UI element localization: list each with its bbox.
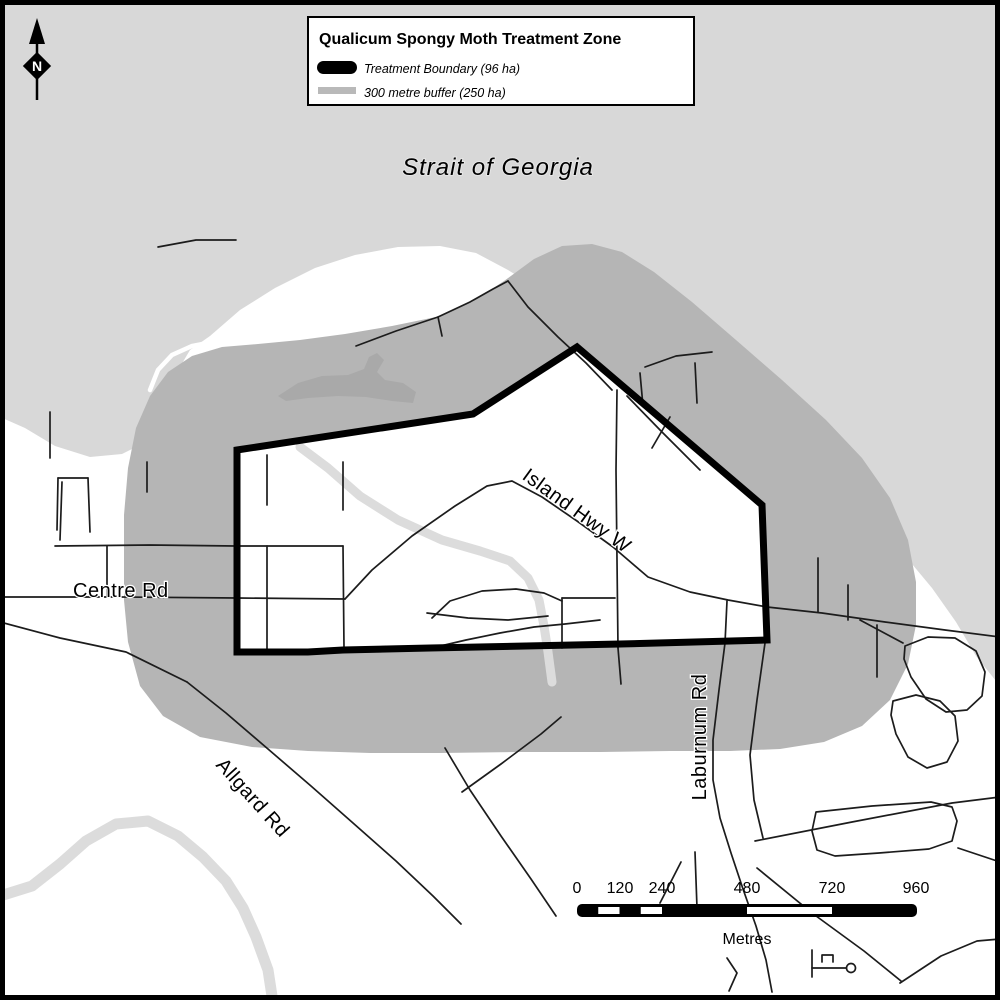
road-7 xyxy=(57,478,58,530)
road-8 xyxy=(88,478,90,532)
map-geometry-layer xyxy=(0,0,1000,996)
treatment-boundary-swatch xyxy=(317,61,357,74)
culdesac-loop xyxy=(847,964,856,973)
road-13 xyxy=(343,546,344,648)
road-53 xyxy=(900,939,1000,983)
scale-bar-white-segment-0 xyxy=(598,907,619,914)
scale-bar-white-segment-1 xyxy=(641,907,662,914)
road-49 xyxy=(891,695,958,768)
scale-tick-240: 240 xyxy=(649,880,676,897)
scale-bar-white-segment-2 xyxy=(747,907,832,914)
scale-bar-segments xyxy=(577,904,917,917)
legend: Qualicum Spongy Moth Treatment Zone Trea… xyxy=(308,17,694,105)
road-50 xyxy=(812,802,957,856)
scale-tick-480: 480 xyxy=(734,880,761,897)
road-48 xyxy=(904,637,985,712)
scale-bar: 0 120 240 480 720 960 Metres xyxy=(573,880,930,948)
map-canvas: Strait of Georgia Centre Rd Island Hwy W… xyxy=(0,0,1000,1000)
label-laburnum-rd: Laburnum Rd xyxy=(689,674,711,801)
legend-item-buffer: 300 metre buffer (250 ha) xyxy=(364,86,506,100)
scale-tick-960: 960 xyxy=(903,880,930,897)
legend-title: Qualicum Spongy Moth Treatment Zone xyxy=(319,31,621,48)
map-svg: Strait of Georgia Centre Rd Island Hwy W… xyxy=(0,0,1000,1000)
scale-tick-0: 0 xyxy=(573,880,582,897)
north-arrow-letter: N xyxy=(32,58,42,74)
scale-tick-720: 720 xyxy=(819,880,846,897)
road-43 xyxy=(727,958,737,991)
road-46 xyxy=(822,955,833,962)
scale-tick-120: 120 xyxy=(607,880,634,897)
road-4 xyxy=(60,482,62,540)
scale-units-label: Metres xyxy=(723,931,772,948)
road-38 xyxy=(445,748,556,916)
road-2 xyxy=(55,545,235,546)
road-52 xyxy=(958,848,1000,862)
label-allgard-rd: Allgard Rd xyxy=(211,754,293,842)
road-47 xyxy=(755,797,1000,841)
label-strait-of-georgia: Strait of Georgia xyxy=(402,154,594,181)
legend-item-treatment-boundary: Treatment Boundary (96 ha) xyxy=(364,62,520,76)
road-42 xyxy=(695,852,697,908)
buffer-swatch xyxy=(318,87,356,94)
label-centre-rd: Centre Rd xyxy=(73,580,169,602)
stream-1 xyxy=(0,821,272,996)
